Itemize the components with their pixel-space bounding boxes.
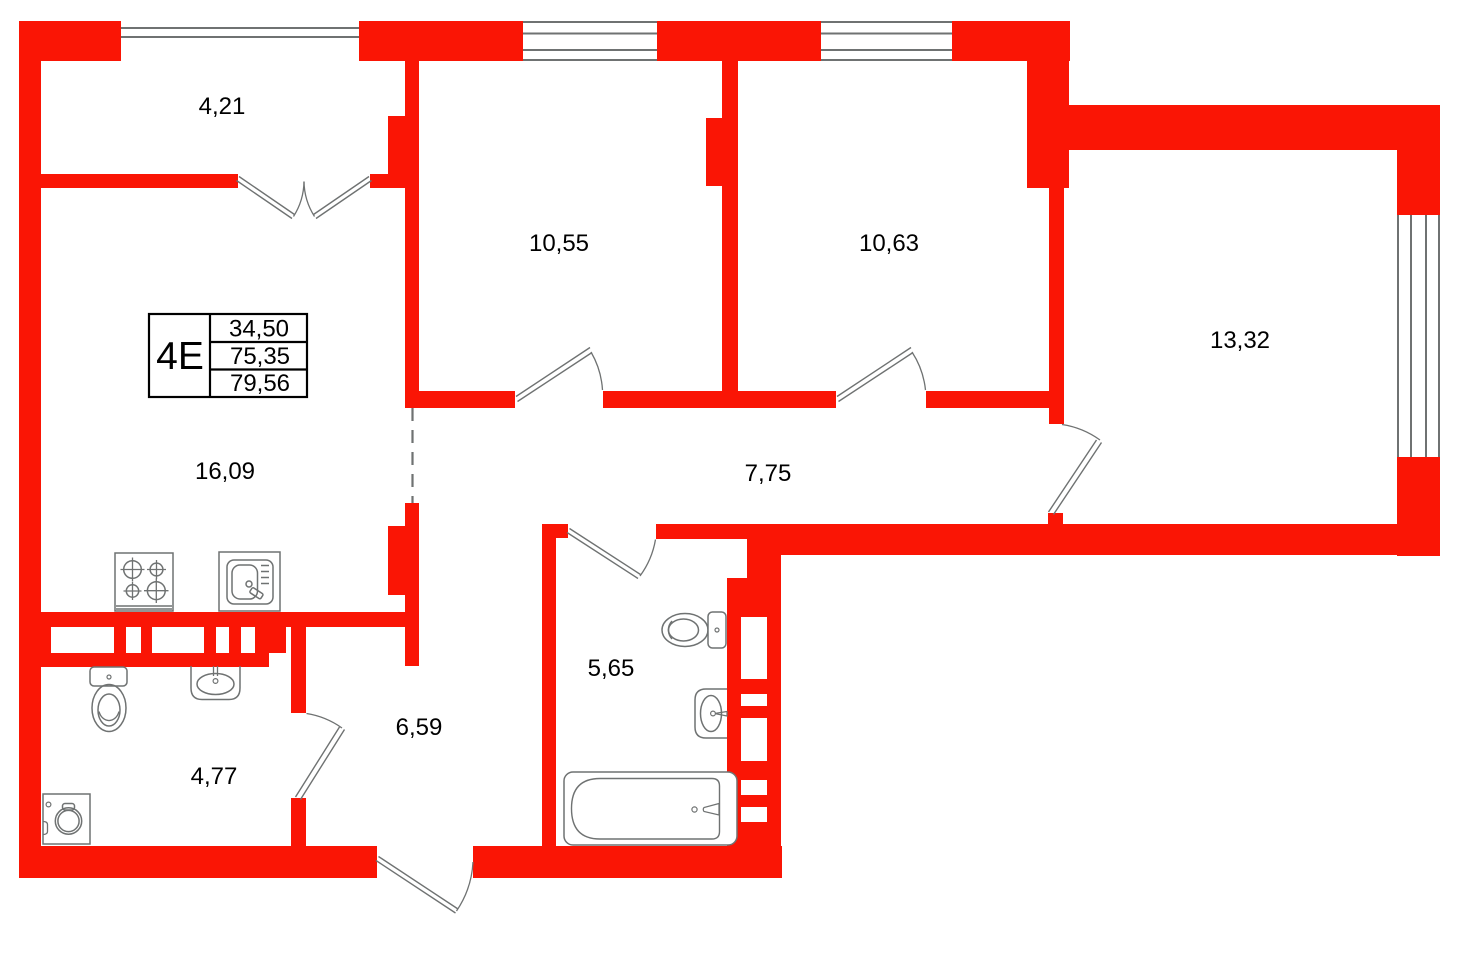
svg-text:10,63: 10,63	[859, 230, 919, 257]
svg-text:7,75: 7,75	[745, 460, 792, 487]
svg-text:34,50: 34,50	[229, 316, 289, 343]
svg-text:5,65: 5,65	[588, 655, 635, 682]
svg-text:4,77: 4,77	[191, 763, 238, 790]
svg-text:6,59: 6,59	[396, 714, 443, 741]
svg-text:10,55: 10,55	[529, 230, 589, 257]
svg-text:16,09: 16,09	[195, 458, 255, 485]
svg-text:4E: 4E	[156, 335, 204, 378]
svg-text:13,32: 13,32	[1210, 327, 1270, 354]
svg-text:79,56: 79,56	[230, 370, 290, 397]
svg-text:75,35: 75,35	[230, 343, 290, 370]
svg-text:4,21: 4,21	[199, 93, 246, 120]
